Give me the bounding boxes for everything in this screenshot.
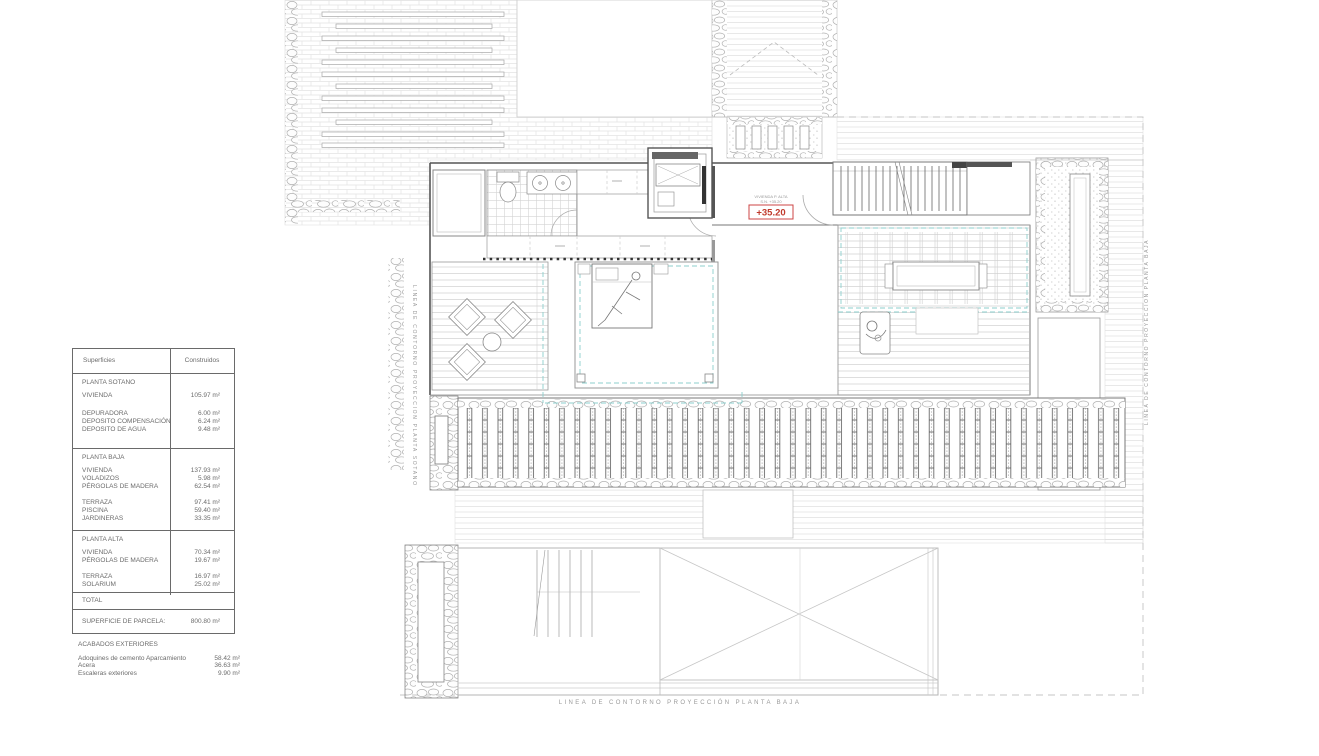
wardrobe (433, 170, 485, 236)
stairs-door-arc (803, 195, 833, 225)
bedroom (575, 208, 718, 388)
table-row: PÉRGOLAS DE MADERA 19.67 m² (73, 557, 234, 565)
table-header: Superficies Construidos (73, 349, 234, 374)
table-row: TERRAZA 16.97 m² (73, 573, 234, 581)
section-planta-baja: PLANTA BAJA VIVIENDA 137.93 m² VOLADIZOS… (73, 448, 234, 530)
exterior-row: Adoquines de cemento Aparcamiento 58.42 … (78, 655, 240, 663)
bed (592, 264, 652, 328)
section-title: PLANTA BAJA (73, 454, 234, 462)
exterior-row: Acera 36.63 m² (78, 662, 240, 670)
stone-edge-left (285, 0, 298, 225)
table-row: DEPOSITO COMPENSACIÓN 6.24 m² (73, 418, 234, 426)
stone-edge-bottom (285, 200, 400, 212)
elevation-value: +35.20 (756, 208, 785, 219)
nightstand (654, 264, 668, 274)
total-row: TOTAL (73, 592, 234, 609)
rug (916, 308, 978, 334)
section-title: PLANTA ALTA (73, 536, 234, 544)
header-superficies: Superficies (73, 357, 170, 365)
surface-area-table: Superficies Construidos PLANTA SOTANO VI… (72, 348, 235, 634)
upper-terrace (432, 262, 548, 390)
header-construidos: Construidos (170, 357, 234, 365)
bathroom (487, 170, 577, 236)
section-title: PLANTA SOTANO (73, 379, 234, 387)
contour-label-left: LINEA DE CONTORNO PROYECCION PLANTA SOTA… (411, 285, 417, 487)
lounge-chair-person (860, 312, 890, 354)
table-row: VIVIENDA 105.97 m² (73, 392, 234, 400)
table-row: SOLARIUM 25.02 m² (73, 581, 234, 589)
table-row: VIVIENDA 70.34 m² (73, 549, 234, 557)
elevation-marker: VIVIENDA P. ALTA S.N. +35.20 +35.20 (749, 194, 793, 219)
table-row: VIVIENDA 137.93 m² (73, 467, 234, 475)
exterior-finishes-title: ACABADOS EXTERIORES (78, 641, 240, 649)
elevator-shaft (648, 148, 712, 218)
lower-terrace (405, 545, 938, 698)
jardinera-opening (703, 490, 793, 538)
round-table (483, 333, 501, 351)
lounge-room (838, 225, 1030, 395)
staircase (803, 162, 1030, 225)
double-sink-icon (527, 172, 577, 194)
table-row: PISCINA 59.40 m² (73, 507, 234, 515)
section-planta-sotano: PLANTA SOTANO VIVIENDA 105.97 m² DEPURAD… (73, 374, 234, 448)
table-column-divider (170, 349, 171, 595)
elevation-note-2: S.N. +35.20 (760, 199, 782, 204)
contour-label-bottom: LINEA DE CONTORNO PROYECCIÓN PLANTA BAJA (559, 699, 801, 706)
long-table (885, 262, 987, 290)
table-row: VOLADIZOS 5.98 m² (73, 475, 234, 483)
table-row: DEPURADORA 6.00 m² (73, 410, 234, 418)
chimney-volume (712, 0, 837, 117)
nightstand (578, 264, 590, 274)
section-planta-alta: PLANTA ALTA VIVIENDA 70.34 m² PÉRGOLAS D… (73, 530, 234, 592)
contour-label-right: LINEA DE CONTORNO PROYECCION PLANTA BAJA (1144, 239, 1150, 425)
table-row: JARDINERAS 33.35 m² (73, 515, 234, 523)
pergola-detail (727, 117, 822, 158)
table-row: DEPOSITO DE AGUA 9.48 m² (73, 426, 234, 434)
flat-roof-panel (517, 0, 712, 117)
planter-skylight (1036, 158, 1108, 312)
parcel-row: SUPERFICIE DE PARCELA: 800.80 m² (73, 609, 234, 633)
exterior-row: Escaleras exteriores 9.90 m² (78, 670, 240, 678)
basement-stone-wall (388, 258, 404, 470)
exterior-finishes-block: ACABADOS EXTERIORES Adoquines de cemento… (78, 641, 240, 677)
table-row: PÉRGOLAS DE MADERA 62.54 m² (73, 483, 234, 491)
blueprint-canvas: VIVIENDA P. ALTA S.N. +35.20 +35.20 (0, 0, 1319, 756)
table-row: TERRAZA 97.41 m² (73, 499, 234, 507)
